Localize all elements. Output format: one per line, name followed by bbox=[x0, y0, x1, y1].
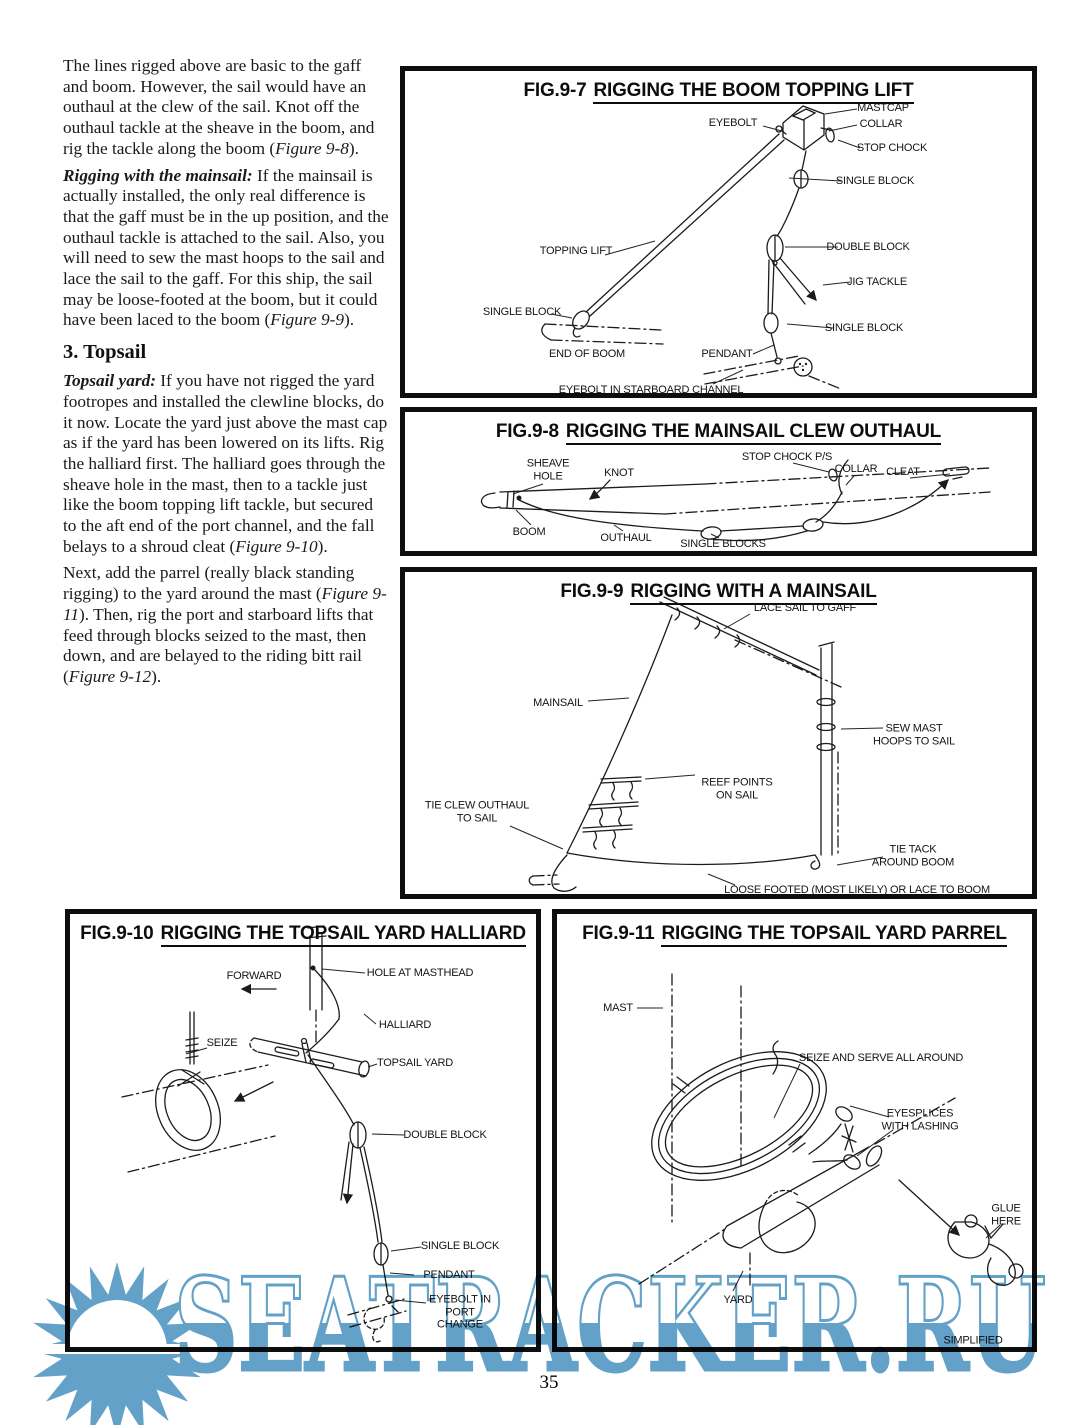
figure-label: HALLIARD bbox=[379, 1019, 431, 1032]
figure-label: LOOSE FOOTED (MOST LIKELY) OR LACE TO BO… bbox=[724, 884, 990, 897]
figure-title: FIG.9-7RIGGING THE BOOM TOPPING LIFT bbox=[405, 80, 1032, 102]
figure-label: MASTCAP bbox=[857, 102, 909, 115]
figure-label: TOPPING LIFT bbox=[540, 245, 613, 258]
figure-label: MAINSAIL bbox=[533, 697, 583, 710]
watermark: SEATRACKER.RU bbox=[0, 1258, 1080, 1425]
figure-label: PENDANT bbox=[701, 348, 752, 361]
article-column: The lines rigged above are basic to the … bbox=[63, 56, 390, 694]
figure-label: TIE CLEW OUTHAULTO SAIL bbox=[425, 800, 529, 825]
figure-label: DOUBLE BLOCK bbox=[403, 1129, 486, 1142]
figure-label: SINGLE BLOCK bbox=[825, 322, 903, 335]
figure-label: COLLAR bbox=[860, 118, 903, 131]
figure-label: SHEAVEHOLE bbox=[527, 458, 570, 483]
page-number: 35 bbox=[524, 1372, 574, 1394]
figure-label: STOP CHOCK P/S bbox=[742, 451, 832, 464]
figure-label: SEIZE AND SERVE ALL AROUND bbox=[799, 1052, 963, 1065]
figure-label: SEIZE bbox=[207, 1037, 238, 1050]
figure-label: END OF BOOM bbox=[549, 348, 625, 361]
figure-label: BOOM bbox=[513, 526, 546, 539]
figure-label: EYEBOLT IN STARBOARD CHANNEL bbox=[559, 384, 744, 397]
figure-label: SINGLE BLOCK bbox=[836, 175, 914, 188]
figure-label: OUTHAUL bbox=[600, 532, 651, 545]
paragraph: The lines rigged above are basic to the … bbox=[63, 56, 390, 160]
figure-label: STOP CHOCK bbox=[857, 142, 927, 155]
figure-label: REEF POINTSON SAIL bbox=[701, 777, 772, 802]
figure-label: EYESPLICESWITH LASHING bbox=[881, 1108, 958, 1133]
figure-title: FIG.9-10RIGGING THE TOPSAIL YARD HALLIAR… bbox=[70, 923, 536, 945]
figure-label: TIE TACKAROUND BOOM bbox=[872, 844, 954, 869]
paragraph: Topsail yard: If you have not rigged the… bbox=[63, 371, 390, 557]
document-page: The lines rigged above are basic to the … bbox=[0, 0, 1080, 1425]
paragraph: Rigging with the mainsail: If the mainsa… bbox=[63, 166, 390, 332]
figure-label: GLUEHERE bbox=[991, 1203, 1021, 1228]
figure-label: CLEAT bbox=[886, 466, 920, 479]
figure-label: SEW MASTHOOPS TO SAIL bbox=[873, 723, 955, 748]
figure-9-9: FIG.9-9RIGGING WITH A MAINSAIL LACE SAIL… bbox=[400, 567, 1037, 899]
figure-9-8: FIG.9-8RIGGING THE MAINSAIL CLEW OUTHAUL… bbox=[400, 407, 1037, 556]
figure-title: FIG.9-8RIGGING THE MAINSAIL CLEW OUTHAUL bbox=[405, 421, 1032, 443]
figure-label: TOPSAIL YARD bbox=[377, 1057, 453, 1070]
section-heading: 3. Topsail bbox=[63, 341, 390, 363]
figure-title: FIG.9-9RIGGING WITH A MAINSAIL bbox=[405, 581, 1032, 603]
figure-9-7: FIG.9-7RIGGING THE BOOM TOPPING LIFT EYE… bbox=[400, 66, 1037, 398]
figure-label: EYEBOLT bbox=[709, 117, 758, 130]
figure-label: HOLE AT MASTHEAD bbox=[367, 967, 473, 980]
figure-label: FORWARD bbox=[227, 970, 282, 983]
figure-title: FIG.9-11RIGGING THE TOPSAIL YARD PARREL bbox=[557, 923, 1032, 945]
figure-label: SINGLE BLOCK bbox=[421, 1240, 499, 1253]
figure-label: COLLAR bbox=[835, 463, 878, 476]
watermark-text: SEATRACKER.RU bbox=[174, 1258, 1046, 1401]
figure-label: SINGLE BLOCKS bbox=[680, 538, 765, 551]
figure-label: MAST bbox=[603, 1002, 633, 1015]
paragraph: Next, add the parrel (really black stand… bbox=[63, 563, 390, 687]
figure-label: JIG TACKLE bbox=[847, 276, 907, 289]
figure-label: DOUBLE BLOCK bbox=[826, 241, 909, 254]
figure-label: KNOT bbox=[604, 467, 634, 480]
figure-label: LACE SAIL TO GAFF bbox=[754, 602, 856, 615]
figure-label: SINGLE BLOCK bbox=[483, 306, 561, 319]
